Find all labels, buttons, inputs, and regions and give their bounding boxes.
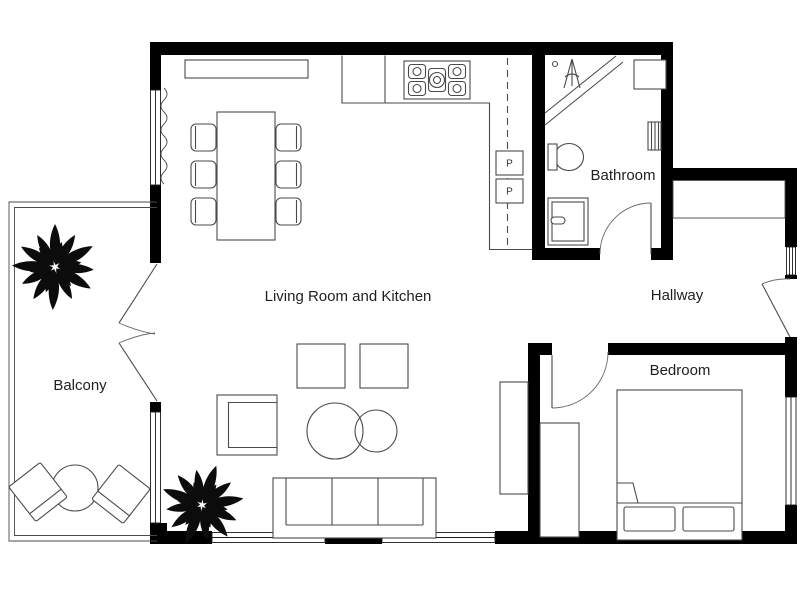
french-door-arc-bottom [119, 333, 155, 343]
french-door-leaf-top [119, 264, 157, 323]
wall-bathroom-bottom-left [532, 248, 600, 260]
living-room: Living Room and Kitchen [148, 288, 528, 558]
french-door-leaf-bottom [119, 343, 157, 401]
balcony-chair-right [92, 464, 151, 523]
wall-right-lower [785, 505, 797, 544]
bathroom: Bathroom [545, 56, 666, 254]
dining-table [217, 112, 275, 240]
pouf [360, 344, 408, 388]
wall-left-doorpost [150, 402, 161, 412]
french-doors-balcony [119, 264, 157, 401]
entry-door [762, 279, 790, 337]
wall-bathroom-bottom-right [651, 248, 673, 260]
dining-chair [191, 198, 216, 225]
floor-plan-canvas: Balcony [0, 0, 800, 600]
coffee-table-small [355, 410, 397, 452]
sofa [273, 478, 436, 538]
wall-bottom-seg1 [150, 531, 212, 544]
kitchen-appliance-2: P [496, 179, 523, 203]
pouf [297, 344, 345, 388]
sideboard [185, 60, 308, 78]
shelf [500, 382, 528, 494]
appliance-label: P [506, 187, 513, 198]
dining-chair [276, 124, 301, 151]
dining-area [185, 60, 308, 240]
room-label-living-kitchen: Living Room and Kitchen [265, 288, 432, 305]
wall-bathroom-left [532, 42, 545, 260]
plant-icon [12, 224, 95, 310]
room-label-bedroom: Bedroom [650, 362, 711, 379]
wall-right-doorpost [785, 275, 797, 279]
stove [404, 61, 470, 99]
pillow [624, 507, 675, 531]
floor-plan-drawing: Balcony [0, 0, 800, 600]
toilet [548, 144, 584, 171]
dining-chair [191, 161, 216, 188]
bedroom: Bedroom [540, 352, 742, 540]
curtain-squiggle [161, 88, 167, 184]
dining-chair [191, 124, 216, 151]
wall-top [150, 42, 673, 55]
appliance-label: P [506, 159, 513, 170]
hallway-closet [673, 181, 785, 219]
faucet-icon [551, 217, 565, 224]
wardrobe [540, 423, 579, 537]
entry-door-sidelight [787, 247, 796, 275]
bed [617, 390, 742, 540]
room-label-bathroom: Bathroom [590, 167, 655, 184]
sink [548, 198, 588, 245]
bathroom-cabinet [634, 60, 666, 89]
dining-chair [276, 161, 301, 188]
window-bedroom-right [786, 397, 796, 505]
dining-chair [276, 198, 301, 225]
wall-bedroom-left [528, 343, 540, 544]
kitchen: P P [342, 56, 532, 250]
wall-left-upper [150, 42, 161, 90]
wall-bedroom-top-right [608, 343, 797, 355]
wall-right-upper [785, 168, 797, 247]
window-left-upper [151, 88, 168, 185]
room-label-balcony: Balcony [53, 377, 107, 394]
kitchen-appliance-1: P [496, 151, 523, 175]
shower-drain-icon [553, 62, 558, 67]
wall-left-mid [150, 185, 161, 263]
radiator [648, 122, 661, 150]
balcony: Balcony [9, 202, 157, 541]
pillow [683, 507, 734, 531]
bathroom-door [600, 203, 651, 254]
french-door-arc-top [119, 323, 155, 334]
shower [545, 56, 623, 125]
wall-hallway-top [673, 168, 797, 180]
shower-head-icon [564, 59, 580, 88]
room-label-hallway: Hallway [651, 287, 704, 304]
armchair [217, 395, 277, 455]
bedroom-door [552, 352, 608, 408]
window-left-lower [151, 412, 161, 523]
